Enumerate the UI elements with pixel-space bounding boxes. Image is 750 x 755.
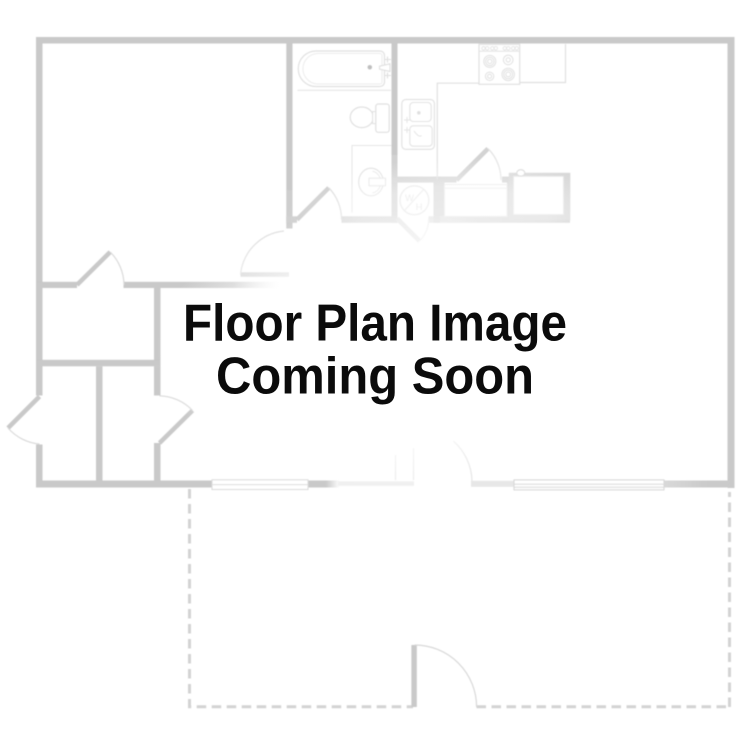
svg-text:Coming Soon: Coming Soon [216,348,534,406]
svg-text:Floor Plan Image: Floor Plan Image [183,295,567,353]
